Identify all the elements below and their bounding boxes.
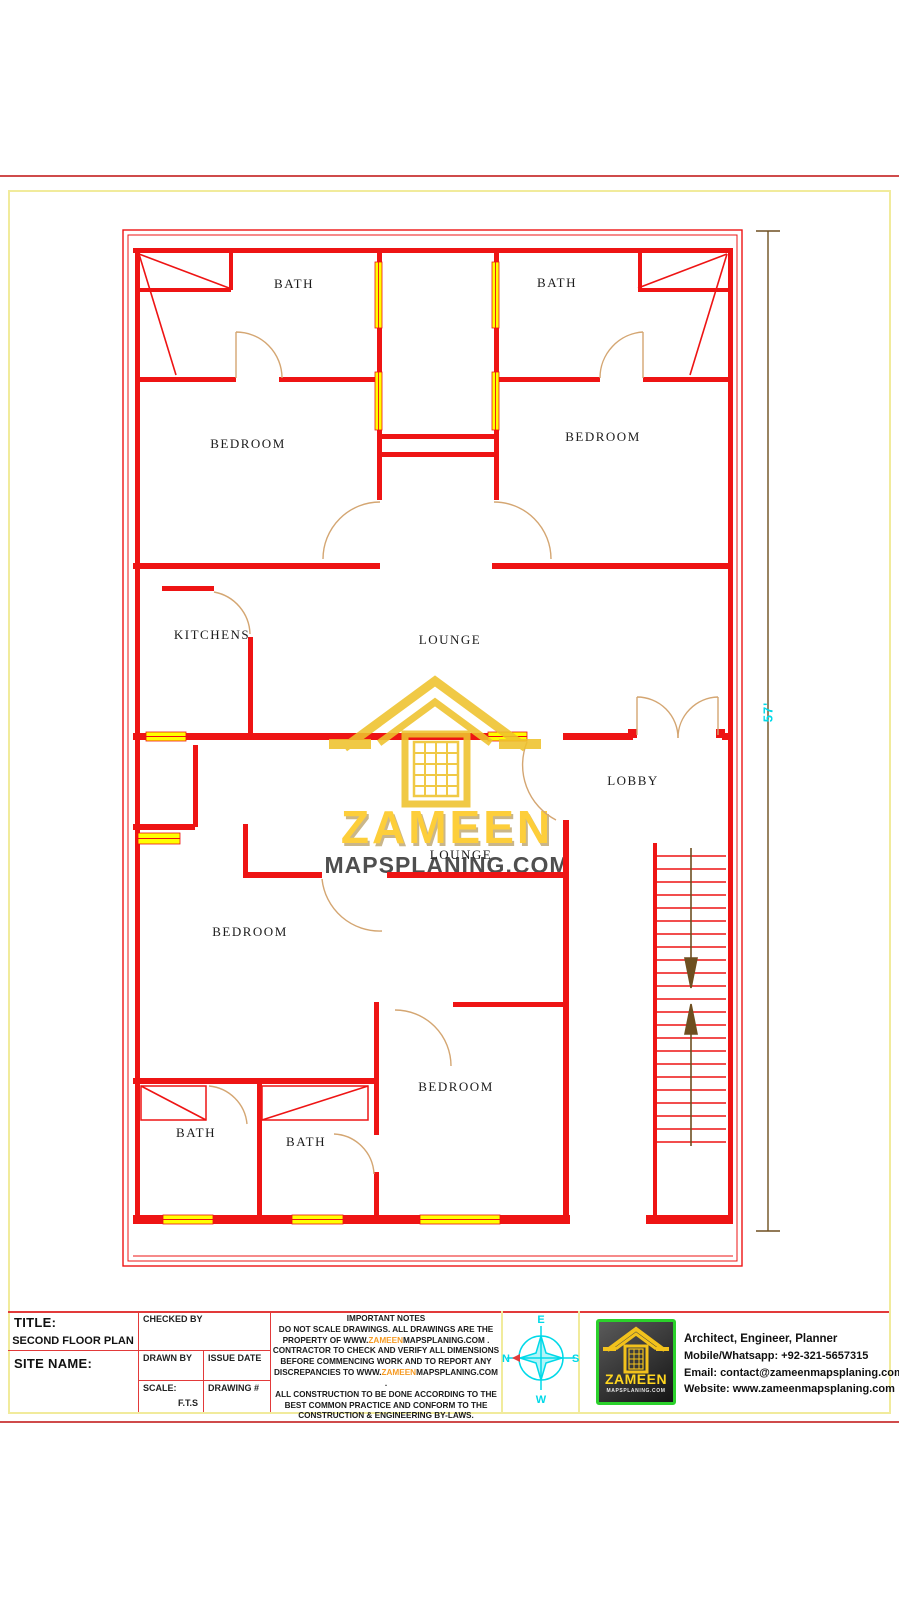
important-notes: IMPORTANT NOTES DO NOT SCALE DRAWINGS. A…	[272, 1314, 500, 1422]
logo-domain-text: MAPSPLANING.COM	[607, 1388, 666, 1394]
room-label-lounge-2: LOUNGE	[430, 847, 492, 863]
contact-mobile: Mobile/Whatsapp: +92-321-5657315	[684, 1348, 899, 1365]
contact-website[interactable]: Website: www.zameenmapsplaning.com	[684, 1381, 899, 1398]
drawn-by-label: DRAWN BY	[143, 1353, 192, 1363]
site-name-label: SITE NAME:	[14, 1356, 92, 1371]
dimension-label: 57'	[761, 702, 776, 723]
scale-value: F.T.S	[178, 1398, 198, 1408]
titleblock-top-border	[8, 1311, 889, 1313]
room-label-bedroom-1: BEDROOM	[210, 436, 286, 452]
scale-label: SCALE:	[143, 1383, 177, 1393]
title-label: TITLE:	[14, 1315, 56, 1330]
contact-email[interactable]: Email: contact@zameenmapsplaning.com	[684, 1365, 899, 1382]
compass-south: S	[572, 1353, 579, 1365]
room-label-kitchens: KITCHENS	[174, 627, 250, 643]
compass-red-pointer	[512, 1354, 520, 1362]
contact-block: Architect, Engineer, Planner Mobile/What…	[684, 1331, 899, 1398]
room-label-bedroom-4: BEDROOM	[418, 1079, 494, 1095]
logo-house-icon	[602, 1322, 670, 1374]
room-label-lounge-1: LOUNGE	[419, 632, 481, 648]
titleblock-hline-2	[138, 1380, 270, 1381]
zameen-logo: ZAMEEN MAPSPLANING.COM	[596, 1319, 676, 1405]
notes-title: IMPORTANT NOTES	[272, 1314, 500, 1325]
room-label-bath-4: BATH	[286, 1134, 326, 1150]
drawing-sheet: { "plan": { "rooms": [ {"label":"BATH","…	[0, 0, 899, 1600]
room-label-bath-1: BATH	[274, 276, 314, 292]
logo-brand-text: ZAMEEN	[605, 1372, 667, 1386]
room-label-bedroom-3: BEDROOM	[212, 924, 288, 940]
contact-role: Architect, Engineer, Planner	[684, 1331, 899, 1348]
issue-date-label: ISSUE DATE	[208, 1353, 261, 1363]
room-label-bath-3: BATH	[176, 1125, 216, 1141]
room-label-lobby: LOBBY	[607, 773, 659, 789]
compass-rose: E S W N	[502, 1313, 580, 1405]
checked-by-label: CHECKED BY	[143, 1314, 203, 1324]
drawing-number-label: DRAWING #	[208, 1383, 259, 1393]
titleblock-hline-1	[8, 1350, 270, 1351]
title-value: SECOND FLOOR PLAN	[12, 1335, 134, 1347]
compass-north: N	[502, 1353, 510, 1365]
titleblock-vline-1	[138, 1311, 139, 1412]
compass-east: E	[537, 1314, 544, 1326]
room-label-bedroom-2: BEDROOM	[565, 429, 641, 445]
compass-west: W	[536, 1394, 547, 1405]
room-label-bath-2: BATH	[537, 275, 577, 291]
